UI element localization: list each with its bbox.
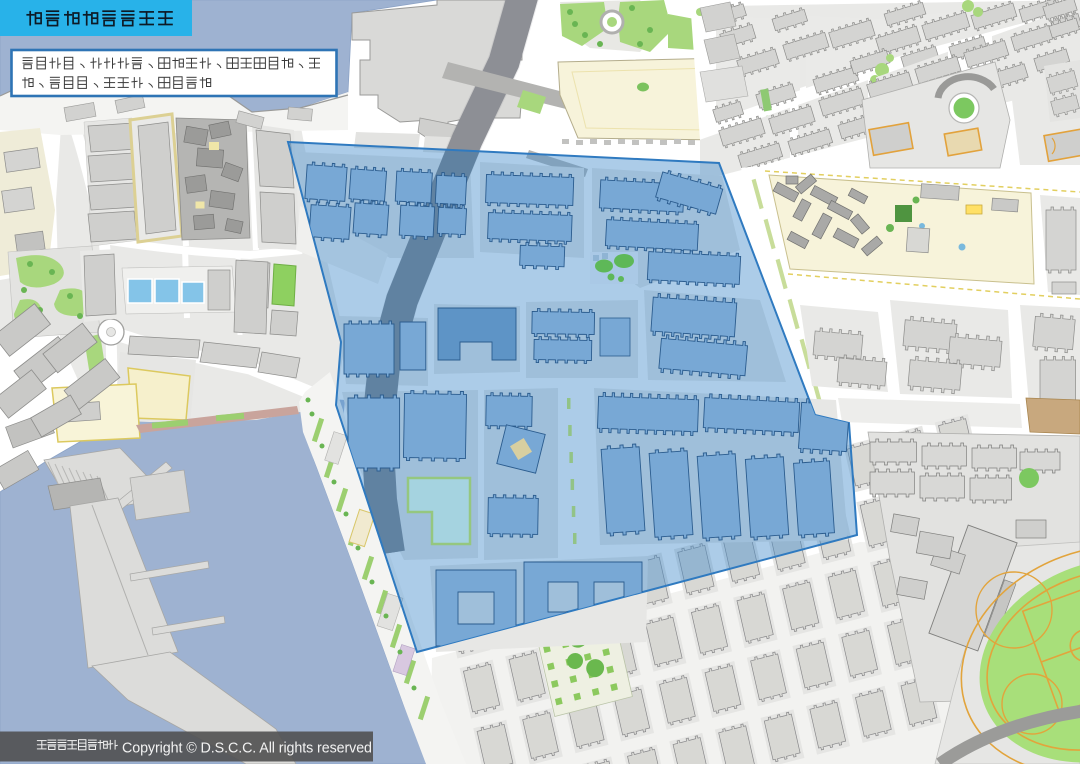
- svg-text:Copyright © D.S.C.C. All right: Copyright © D.S.C.C. All rights reserved: [122, 741, 372, 757]
